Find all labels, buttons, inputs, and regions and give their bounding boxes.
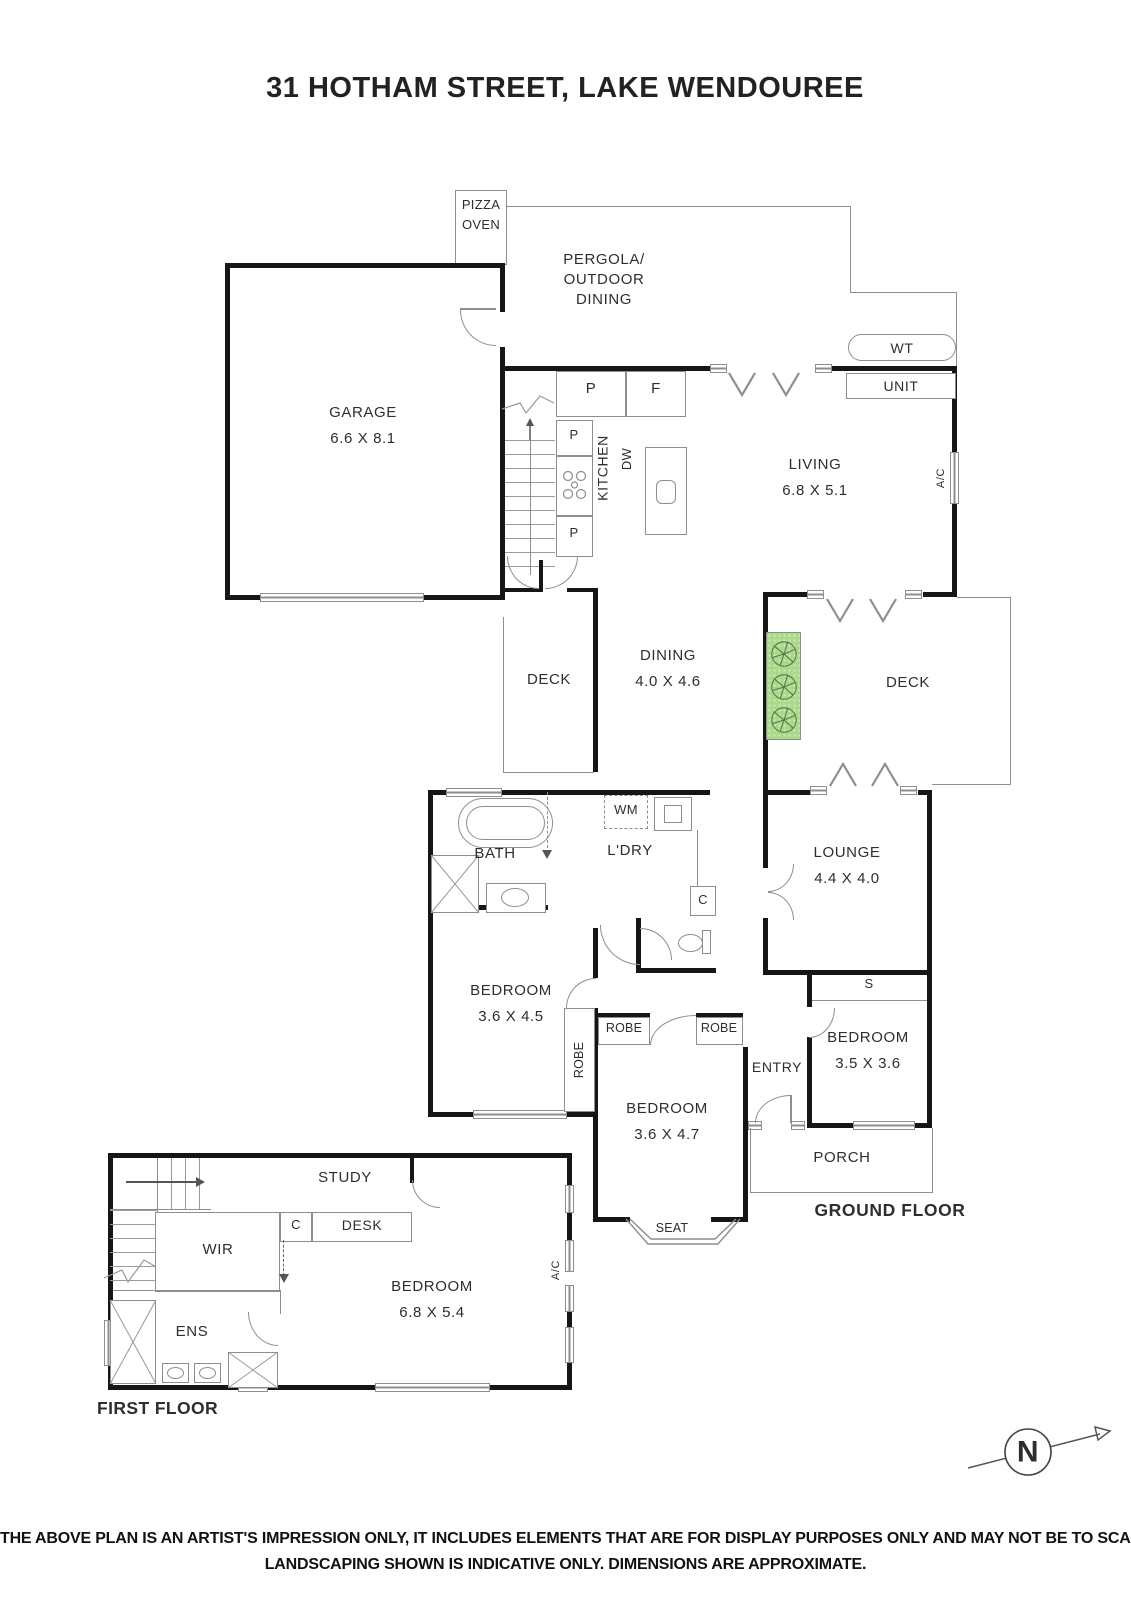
wall — [807, 1123, 855, 1128]
bifold-door-icon — [870, 762, 900, 788]
deck-edge — [503, 617, 504, 772]
floor-plan: 31 HOTHAM STREET, LAKE WENDOUREE PIZZA O… — [0, 0, 1131, 1600]
bifold-door-icon — [828, 762, 858, 788]
wir-label: WIR — [203, 1242, 234, 1259]
wall — [927, 975, 932, 1128]
toilet-bowl — [678, 934, 703, 952]
wall — [763, 970, 932, 975]
window — [815, 364, 832, 373]
window — [473, 1110, 567, 1119]
ground-floor-label: GROUND FLOOR — [814, 1201, 965, 1220]
door-swing — [768, 892, 794, 920]
living-dims: 6.8 X 5.1 — [782, 483, 847, 500]
cupboard-label: C — [291, 1218, 301, 1232]
door-swing — [507, 556, 539, 589]
disclaimer-line: LANDSCAPING SHOWN IS INDICATIVE ONLY. DI… — [0, 1556, 1131, 1574]
wall — [927, 790, 932, 975]
bifold-door-icon — [771, 371, 801, 397]
stair-break-icon — [102, 1256, 160, 1290]
wall — [567, 1363, 572, 1390]
pergola-outline — [850, 206, 851, 293]
door-swing — [600, 925, 640, 965]
bifold-door-icon — [727, 371, 757, 397]
unit-box: UNIT — [846, 373, 956, 399]
door-swing — [248, 1312, 278, 1346]
wall — [567, 1213, 572, 1240]
line — [697, 830, 698, 886]
bedroom-middle-dims: 3.6 X 4.7 — [634, 1127, 699, 1144]
wall — [743, 1047, 748, 1222]
bedroom-front-dims: 3.5 X 3.6 — [835, 1056, 900, 1073]
shower-icon — [110, 1300, 156, 1384]
wall — [539, 560, 543, 592]
shower-icon — [228, 1352, 278, 1388]
sink — [656, 480, 676, 504]
wall — [428, 1112, 475, 1117]
line — [280, 1290, 281, 1314]
cupboard-label: C — [698, 893, 708, 907]
door-swing — [640, 928, 672, 960]
window — [446, 788, 502, 797]
garage-label: GARAGE — [329, 405, 397, 422]
wall — [567, 1312, 572, 1327]
wall — [567, 1153, 572, 1185]
study-label: STUDY — [318, 1170, 372, 1187]
wall — [108, 1385, 238, 1390]
bifold-door-icon — [825, 597, 855, 623]
seat-label: SEAT — [656, 1222, 689, 1236]
bedroom-first-dims: 6.8 X 5.4 — [399, 1305, 464, 1322]
bedroom-rear-dims: 3.6 X 4.5 — [478, 1009, 543, 1026]
porch-edge — [750, 1192, 933, 1193]
living-label: LIVING — [789, 457, 842, 474]
wall — [225, 595, 265, 600]
wall — [636, 968, 716, 973]
first-floor-label: FIRST FLOOR — [97, 1398, 218, 1419]
storage-label: S — [865, 977, 874, 991]
tree-icon — [769, 639, 799, 669]
deck-label: DECK — [527, 672, 571, 689]
wall — [410, 1153, 414, 1183]
pergola-outline — [956, 292, 957, 367]
deck-edge — [503, 772, 594, 773]
window — [791, 1121, 805, 1130]
window — [565, 1185, 574, 1213]
window — [905, 590, 922, 599]
stair-rail — [530, 440, 531, 575]
dining-label: DINING — [640, 648, 696, 665]
basin-bowl — [199, 1367, 216, 1379]
bedroom-middle-label: BEDROOM — [626, 1101, 708, 1118]
line — [110, 1209, 211, 1210]
wall — [832, 366, 957, 371]
bedroom-rear-label: BEDROOM — [470, 983, 552, 1000]
door-swing — [545, 556, 578, 589]
entry-label: ENTRY — [752, 1060, 802, 1075]
bedroom-front-label: BEDROOM — [827, 1030, 909, 1047]
wall — [593, 1112, 598, 1222]
wall — [490, 1385, 572, 1390]
wall — [763, 790, 768, 868]
wall — [763, 592, 807, 597]
deck-edge — [957, 597, 1011, 598]
wall — [268, 1385, 375, 1390]
pizza-oven-label: OVEN — [462, 218, 500, 232]
dishwasher-label: DW — [620, 448, 634, 470]
pergola-outline — [850, 292, 957, 293]
wall — [593, 588, 598, 772]
porch-edge — [932, 1128, 933, 1192]
window — [375, 1383, 490, 1392]
tree-icon — [769, 705, 799, 735]
line — [113, 1290, 280, 1291]
ac-label: A/C — [935, 468, 947, 488]
page-title: 31 HOTHAM STREET, LAKE WENDOUREE — [266, 72, 864, 105]
robe-label: ROBE — [606, 1022, 642, 1036]
wall — [593, 928, 598, 978]
door-swing — [768, 864, 794, 892]
compass-north-label: N — [1017, 1436, 1039, 1469]
robe-label: ROBE — [701, 1022, 737, 1036]
window — [807, 590, 824, 599]
pergola-label: PERGOLA/ — [563, 252, 645, 269]
pergola-label: OUTDOOR — [564, 272, 645, 289]
basin-bowl — [167, 1367, 184, 1379]
door-swing — [650, 1015, 696, 1045]
pergola-outline — [507, 206, 851, 207]
wall — [763, 790, 812, 795]
porch-edge — [750, 1128, 751, 1192]
window — [565, 1327, 574, 1363]
shower-icon — [431, 855, 479, 913]
line — [547, 792, 548, 848]
door-swing — [755, 1095, 791, 1123]
laundry-label: L'DRY — [607, 843, 653, 860]
wall — [500, 263, 505, 312]
deck-label: DECK — [886, 675, 930, 692]
tree-icon — [769, 672, 799, 702]
window — [900, 786, 917, 795]
wall — [807, 1037, 812, 1128]
bedroom-first-label: BEDROOM — [391, 1279, 473, 1296]
wall — [422, 595, 505, 600]
ac-label: A/C — [550, 1260, 562, 1280]
deck-edge — [932, 784, 1011, 785]
door-swing — [412, 1180, 440, 1208]
wall — [763, 918, 768, 975]
fridge-label: F — [651, 381, 661, 398]
water-tank: WT — [848, 334, 956, 361]
wall — [913, 1123, 932, 1128]
dining-dims: 4.0 X 4.6 — [635, 674, 700, 691]
stair-arrow — [126, 1181, 196, 1183]
storage-line — [807, 1000, 932, 1001]
lounge-label: LOUNGE — [814, 845, 881, 862]
pantry-label: P — [570, 428, 579, 442]
window — [565, 1240, 574, 1272]
window — [853, 1121, 915, 1130]
stair-break-icon — [500, 393, 556, 417]
pergola-label: DINING — [576, 292, 632, 309]
wall — [225, 263, 230, 600]
line — [283, 1240, 284, 1276]
lounge-dims: 4.4 X 4.0 — [814, 871, 879, 888]
door-swing — [566, 978, 596, 1008]
bathtub-inner — [466, 806, 545, 840]
ens-label: ENS — [176, 1324, 209, 1341]
robe-label: ROBE — [573, 1042, 587, 1078]
bath-label: BATH — [474, 846, 515, 863]
pantry-label: P — [586, 381, 597, 398]
cooktop-icon — [556, 456, 593, 516]
toilet-tank — [702, 930, 711, 954]
wall — [428, 790, 433, 1117]
wall — [225, 263, 505, 268]
kitchen-label: KITCHEN — [595, 435, 610, 501]
porch-label: PORCH — [813, 1150, 870, 1167]
garage-dims: 6.6 X 8.1 — [330, 431, 395, 448]
pizza-oven-label: PIZZA — [462, 198, 500, 212]
door-swing — [460, 310, 496, 346]
bifold-door-icon — [868, 597, 898, 623]
arrow-icon — [542, 850, 552, 859]
desk-label: DESK — [342, 1218, 383, 1233]
window — [260, 593, 424, 602]
window — [565, 1285, 574, 1312]
window — [710, 364, 727, 373]
deck-edge — [1010, 597, 1011, 785]
ac-unit — [950, 452, 959, 504]
laundry-tub-inner — [664, 805, 682, 823]
basin — [501, 888, 529, 907]
wall — [807, 975, 812, 1007]
arrow-icon — [196, 1177, 205, 1187]
stair-arrow-icon — [524, 418, 536, 440]
washing-machine-label: WM — [614, 803, 638, 817]
window — [810, 786, 827, 795]
arrow-icon — [279, 1274, 289, 1283]
pantry-label: P — [570, 526, 579, 540]
disclaimer-line: THE ABOVE PLAN IS AN ARTIST'S IMPRESSION… — [0, 1530, 1131, 1548]
wall — [923, 592, 957, 597]
